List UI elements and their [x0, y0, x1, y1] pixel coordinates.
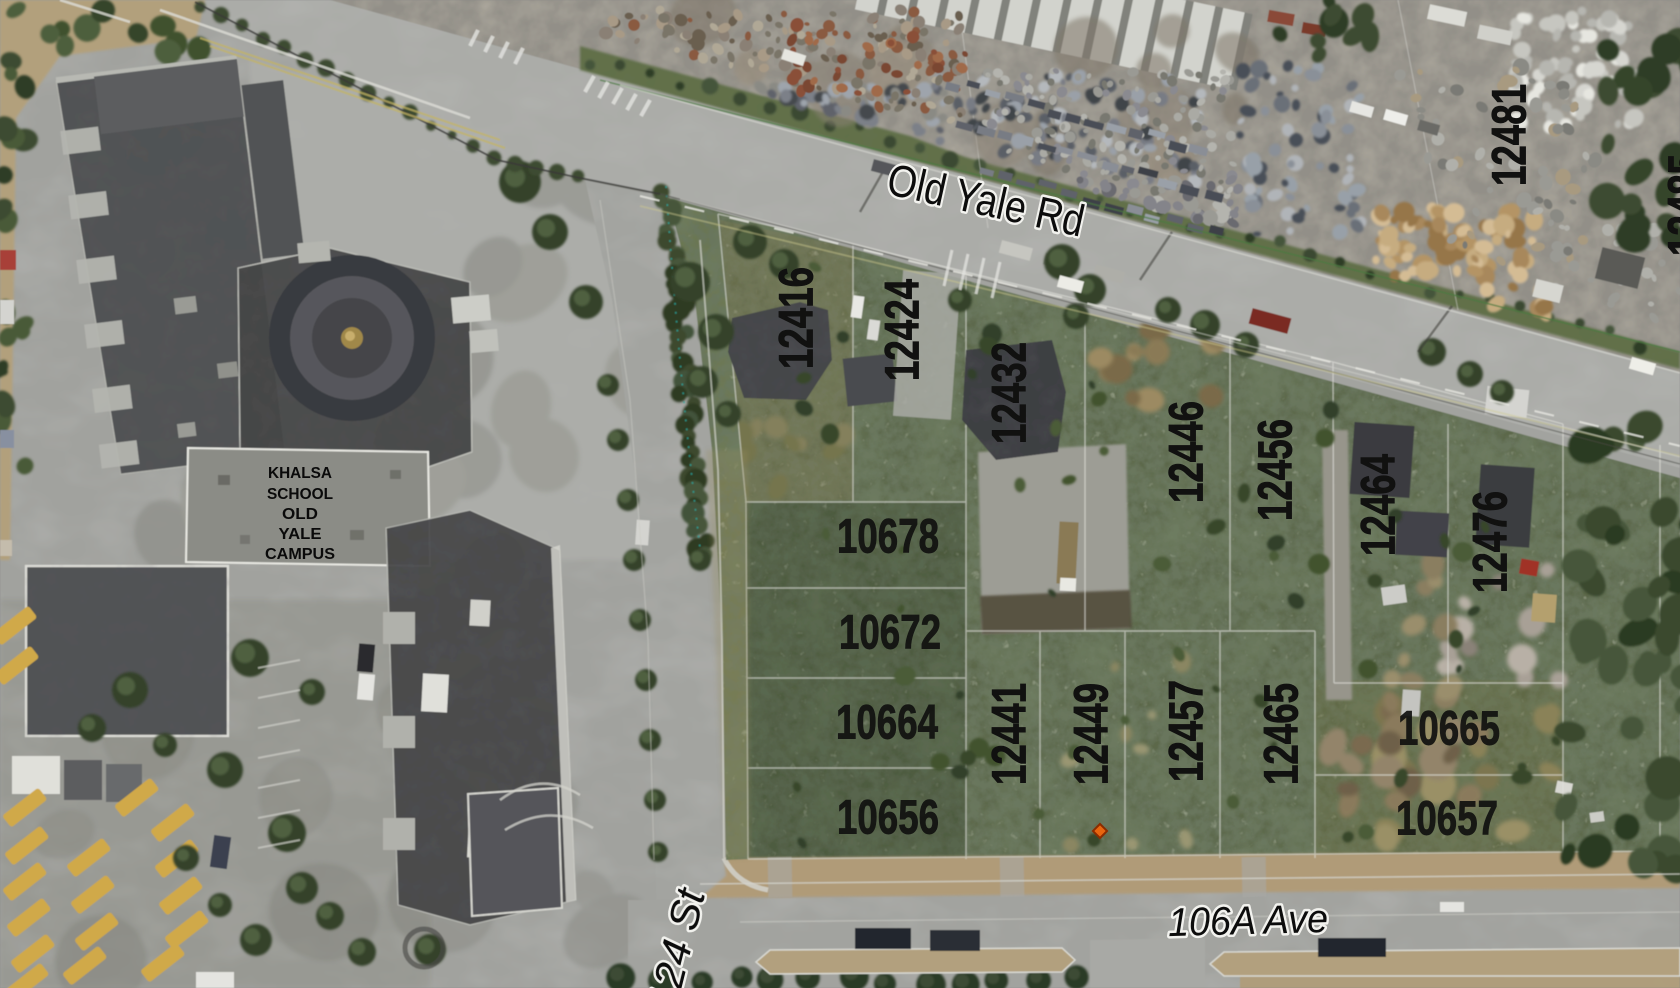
svg-text:12485: 12485 [1660, 154, 1680, 256]
svg-text:12446: 12446 [1161, 401, 1214, 503]
svg-text:10656: 10656 [837, 792, 939, 845]
svg-text:106A Ave: 106A Ave [1167, 897, 1328, 945]
svg-text:12441: 12441 [984, 683, 1037, 785]
svg-text:12464: 12464 [1353, 454, 1406, 556]
svg-text:10672: 10672 [839, 607, 941, 660]
svg-text:10665: 10665 [1398, 703, 1500, 756]
svg-text:12449: 12449 [1066, 683, 1119, 785]
svg-text:KHALSA: KHALSA [268, 465, 332, 482]
svg-text:12476: 12476 [1465, 491, 1518, 593]
svg-text:12432: 12432 [984, 342, 1037, 444]
svg-text:10657: 10657 [1396, 793, 1498, 846]
svg-text:12481: 12481 [1484, 84, 1537, 186]
svg-text:12457: 12457 [1161, 680, 1214, 782]
svg-text:SCHOOL: SCHOOL [267, 486, 333, 503]
svg-text:OLD: OLD [282, 506, 318, 523]
svg-text:CAMPUS: CAMPUS [265, 546, 335, 563]
svg-text:12465: 12465 [1256, 683, 1309, 785]
svg-text:12424: 12424 [877, 279, 930, 381]
svg-text:10678: 10678 [837, 511, 939, 564]
svg-text:YALE: YALE [279, 526, 322, 543]
svg-text:10664: 10664 [836, 697, 938, 750]
svg-text:12416: 12416 [771, 267, 824, 369]
svg-text:12456: 12456 [1250, 419, 1303, 521]
